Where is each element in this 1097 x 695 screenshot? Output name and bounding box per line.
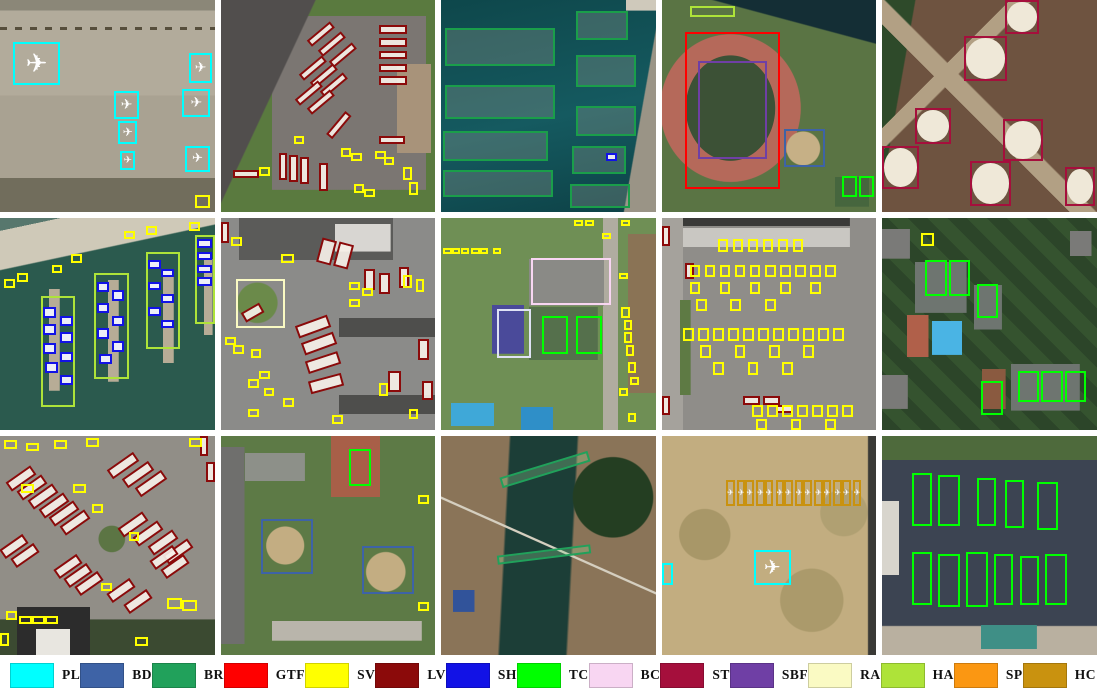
sv-bbox [354,184,365,192]
hc-bbox: ✈ [756,480,765,506]
lv-object [281,155,286,179]
sv-bbox [619,273,628,279]
lv-object [223,224,228,241]
legend-item-SBF: SBF [730,663,808,688]
sv-bbox [6,611,17,620]
aircraft-icon: ✈ [797,482,802,504]
legend-swatch-SV [305,663,349,688]
legend-label-RA: RA [860,667,881,683]
tc-bbox [925,260,946,296]
lv-object [291,157,296,181]
sv-bbox [403,167,412,180]
sv-bbox [259,371,270,379]
st-object [1007,2,1037,32]
ha-bbox [443,131,548,161]
lv-bbox [379,25,407,33]
lv-object [109,581,133,600]
lv-object [302,159,307,183]
sv-bbox [773,328,784,341]
ha-bbox [570,184,630,207]
lv-object [390,373,399,390]
sh-bbox [197,265,212,273]
hc-bbox: ✈ [776,480,785,506]
sh-bbox [97,282,110,293]
lv-bbox [388,371,401,392]
br-object [502,454,588,486]
sample-sports-park [441,218,656,430]
sh-bbox [60,316,73,327]
legend-item-ST: ST [660,663,730,688]
sv-bbox [713,362,724,375]
lv-bbox [662,226,671,245]
sv-bbox [409,409,418,420]
sh-object [99,330,108,337]
sv-bbox [750,265,761,278]
sv-bbox [351,153,362,161]
sv-bbox [585,220,594,226]
sv-bbox [713,328,724,341]
sh-object [163,322,172,326]
ha-bbox [576,55,636,87]
lv-object [208,464,213,480]
legend-label-BD: BD [132,667,152,683]
hc-bbox: ✈ [833,480,842,506]
lv-object [319,240,335,264]
legend-label-PL: PL [62,667,80,683]
sv-bbox [718,239,729,252]
ha-bbox [445,28,554,66]
sh-object [47,364,56,371]
sv-bbox [332,415,343,423]
sv-bbox [146,226,157,234]
tc-bbox [859,176,874,197]
sv-bbox [471,248,480,254]
sh-bbox [60,332,73,343]
legend-swatch-LV [375,663,419,688]
legend-swatch-RA [808,663,852,688]
sh-object [101,356,110,363]
aircraft-icon: ✈ [767,482,772,504]
sample-baseball-fields [221,436,436,655]
sv-bbox [621,220,630,226]
legend-swatch-HC [1023,663,1067,688]
sv-bbox [628,362,637,373]
tc-bbox [994,554,1013,604]
sh-bbox [45,362,58,373]
sv-bbox [259,167,270,175]
sh-object [62,354,71,361]
sv-bbox [782,405,793,418]
lv-object [127,592,151,611]
tc-bbox [1065,371,1086,403]
sv-bbox [921,233,934,246]
sv-bbox [443,248,452,254]
lv-bbox [221,222,230,243]
legend-item-GTF: GTF [224,663,305,688]
sv-bbox [379,383,388,396]
sh-bbox [112,316,125,327]
lv-bbox [418,339,429,360]
aircraft-icon: ✈ [191,55,211,81]
aircraft-icon: ✈ [786,482,791,504]
lv-object [310,375,342,391]
sv-bbox [4,440,17,449]
sv-bbox [135,637,148,646]
sample-marina-boats [0,218,215,430]
sv-bbox [0,633,9,646]
sh-object [199,279,210,283]
sv-bbox [791,419,802,430]
legend-label-TC: TC [569,667,589,683]
legend-item-PL: PL [10,663,80,688]
st-object [1005,121,1042,159]
sh-bbox [161,269,174,277]
sample-stadium-track-field [662,0,877,212]
sh-bbox [43,307,56,318]
sv-bbox [626,345,635,356]
sv-bbox [720,282,731,295]
tc-bbox [938,475,959,525]
sv-bbox [797,405,808,418]
pl-bbox: ✈ [120,151,135,170]
sv-bbox [624,332,633,343]
sv-bbox [756,419,767,430]
legend-label-LV: LV [427,667,446,683]
sv-bbox [705,265,716,278]
lv-object [381,53,405,57]
sv-bbox [624,320,633,331]
lv-object [381,40,405,44]
sv-bbox [349,299,360,307]
sv-bbox [167,598,182,609]
sh-bbox [197,252,212,260]
sh-bbox [148,307,161,315]
sh-bbox [161,294,174,302]
lv-object [297,317,328,336]
sh-bbox [60,352,73,363]
lv-object [329,114,349,137]
sh-bbox [97,303,110,314]
tc-bbox [842,176,857,197]
lv-object [664,398,669,413]
sh-bbox [43,343,56,354]
legend-item-SV: SV [305,663,375,688]
sv-bbox [683,328,694,341]
tc-bbox [1037,482,1058,530]
ha-bbox [443,170,552,198]
tc-bbox [981,381,1002,415]
hc-bbox: ✈ [795,480,804,506]
sv-bbox [574,220,583,226]
legend-swatch-PL [10,663,54,688]
tc-bbox [349,449,370,486]
sv-bbox [630,377,639,385]
sv-bbox [493,248,502,254]
sv-bbox [281,254,294,262]
legend-label-SV: SV [357,667,375,683]
sh-object [99,284,108,291]
tc-bbox [938,554,959,607]
legend-label-HA: HA [933,667,954,683]
aircraft-icon: ✈ [747,482,752,504]
br-bbox [497,544,592,564]
lv-object [381,66,405,70]
sv-bbox [825,419,836,430]
aircraft-icon: ✈ [728,482,733,504]
pl-bbox: ✈ [114,91,140,119]
sv-bbox [793,239,804,252]
sv-bbox [782,362,793,375]
lv-bbox [379,64,407,72]
sh-bbox [112,341,125,352]
sv-bbox [416,279,425,292]
sv-bbox [362,288,373,296]
aircraft-icon: ✈ [122,153,133,168]
lv-bbox [305,351,342,374]
ha-bbox [572,146,626,174]
sample-school-bus-lot [0,436,215,655]
lv-bbox [319,163,328,191]
aircraft-icon: ✈ [15,44,58,82]
sv-bbox [735,265,746,278]
pl-bbox: ✈ [185,146,211,171]
legend-swatch-TC [517,663,561,688]
sh-object [114,318,123,325]
legend-label-BC: BC [641,667,661,683]
sv-bbox [233,345,244,353]
tc-bbox [912,473,931,526]
st-bbox [915,108,951,144]
sv-bbox [842,405,853,418]
hc-bbox: ✈ [745,480,754,506]
sv-bbox [461,248,470,254]
hc-bbox: ✈ [765,480,774,506]
pl-bbox: ✈ [754,550,790,585]
lv-object [331,45,354,65]
legend-item-LV: LV [375,663,446,688]
tc-bbox [576,316,602,354]
aircraft-icon: ✈ [805,482,810,504]
legend-swatch-BC [589,663,633,688]
sh-bbox [148,282,161,290]
sv-bbox [752,405,763,418]
ha-object [445,133,546,159]
sh-object [114,343,123,350]
legend-swatch-BD [80,663,124,688]
sv-bbox [780,282,791,295]
sv-bbox [124,231,135,239]
legend-label-BR: BR [204,667,224,683]
sv-bbox [248,409,259,417]
sv-bbox [825,265,836,278]
bc-bbox [531,258,610,305]
sv-bbox [810,282,821,295]
aircraft-icon: ✈ [778,482,783,504]
sv-bbox [748,362,759,375]
st-object [884,148,916,186]
sh-object [163,296,172,300]
tc-bbox [542,316,568,354]
sv-bbox [767,405,778,418]
hc-bbox: ✈ [814,480,823,506]
sv-bbox [810,265,821,278]
lv-bbox [206,462,215,482]
legend-item-HC: HC [1023,663,1096,688]
sv-bbox [92,504,103,513]
lv-object [336,244,352,268]
tc-bbox [1005,480,1024,528]
category-legend: PLBDBRGTFSVLVSHTCBCSTSBFRAHASPHC [0,655,1097,695]
ha-object [447,87,552,117]
sv-bbox [384,157,395,165]
sh-object [608,155,615,159]
sv-bbox [26,443,39,452]
legend-item-BD: BD [80,663,152,688]
bd-bbox [261,519,313,574]
sh-object [150,262,159,266]
lv-object [381,27,405,31]
lv-object [304,334,335,353]
legend-swatch-ST [660,663,704,688]
image-grid: ✈✈✈✈✈✈✈ ✈✈✈✈✈✈✈✈✈✈✈✈✈✈✈ [0,0,1097,655]
sh-object [114,292,123,299]
lv-bbox [379,136,405,144]
br-bbox [500,451,591,488]
tc-bbox [949,260,970,296]
sh-bbox [60,375,73,386]
sh-object [199,254,210,258]
lv-bbox [379,51,407,59]
lv-bbox [124,589,153,614]
lv-bbox [364,269,375,290]
sv-bbox [189,222,200,230]
sv-bbox [733,239,744,252]
sh-object [62,334,71,341]
lv-object [664,228,669,243]
hc-bbox: ✈ [823,480,832,506]
lv-bbox [289,155,298,183]
aircraft-icon: ✈ [187,148,209,169]
sv-bbox [248,379,259,387]
sv-bbox [71,254,82,262]
aircraft-icon: ✈ [816,482,821,504]
sbf-bbox [698,61,767,159]
sv-bbox [52,265,63,273]
sh-object [99,305,108,312]
hc-bbox: ✈ [737,480,746,506]
sh-bbox [43,324,56,335]
sv-bbox [602,233,611,239]
lv-object [308,353,340,371]
pl-bbox: ✈ [189,53,213,83]
bd-bbox [362,546,414,594]
legend-swatch-SP [954,663,998,688]
sv-bbox [700,345,711,358]
sh-bbox [97,328,110,339]
sv-bbox [418,495,429,504]
aircraft-icon: ✈ [184,91,208,115]
sh-object [45,309,54,316]
lv-bbox [233,170,259,178]
hc-bbox: ✈ [842,480,851,506]
tc-bbox [1020,556,1039,604]
hc-bbox: ✈ [803,480,812,506]
sv-bbox [195,195,210,208]
sample-bus-depot [221,0,436,212]
sv-bbox [728,328,739,341]
sv-bbox [101,583,112,592]
sv-bbox [4,279,15,287]
sh-object [150,309,159,313]
lv-object [235,172,257,176]
st-bbox [1005,0,1039,34]
tc-bbox [1018,371,1039,403]
sample-desert-aircraft: ✈✈✈✈✈✈✈✈✈✈✈✈✈✈✈ [662,436,877,655]
tc-bbox [1041,371,1062,403]
legend-item-HA: HA [881,663,954,688]
sv-bbox [409,182,418,195]
legend-swatch-GTF [224,663,268,688]
lv-bbox [326,111,352,139]
sv-bbox [21,484,34,493]
sv-bbox [803,345,814,358]
tc-bbox [912,552,931,605]
sh-object [163,271,172,275]
tc-bbox [977,284,998,318]
sv-bbox [735,345,746,358]
lv-object [202,438,207,454]
sv-bbox [833,328,844,341]
lv-bbox [379,38,407,46]
ha-bbox [576,106,636,136]
sv-bbox [231,237,242,245]
sv-bbox [743,328,754,341]
sv-bbox [283,398,294,406]
tc-bbox [966,552,987,607]
aircraft-icon: ✈ [758,482,763,504]
sv-bbox [349,282,360,290]
sh-bbox [148,260,161,268]
sample-tennis-complex [882,436,1097,655]
lv-object [381,78,405,82]
sv-bbox [86,438,99,447]
aircraft-icon: ✈ [855,482,860,504]
sample-tennis-in-woods [882,218,1097,430]
pl-bbox: ✈ [182,89,210,117]
lv-object [420,341,427,358]
lv-bbox [333,242,354,270]
lv-bbox [279,153,288,181]
sv-bbox [251,349,262,357]
lv-bbox [379,273,390,294]
sv-bbox [803,328,814,341]
hc-bbox: ✈ [853,480,862,506]
sample-roundabout-truck-depot [221,218,436,430]
sv-bbox [720,265,731,278]
legend-item-BC: BC [589,663,661,688]
sh-object [45,326,54,333]
sv-bbox [698,328,709,341]
lv-object [381,275,388,292]
sv-bbox [452,248,461,254]
sv-bbox [418,602,429,611]
sh-object [62,377,71,384]
sh-object [199,267,210,271]
ha-bbox [576,11,628,41]
st-bbox [882,146,918,188]
st-object [1067,169,1093,203]
sv-bbox [182,600,197,611]
